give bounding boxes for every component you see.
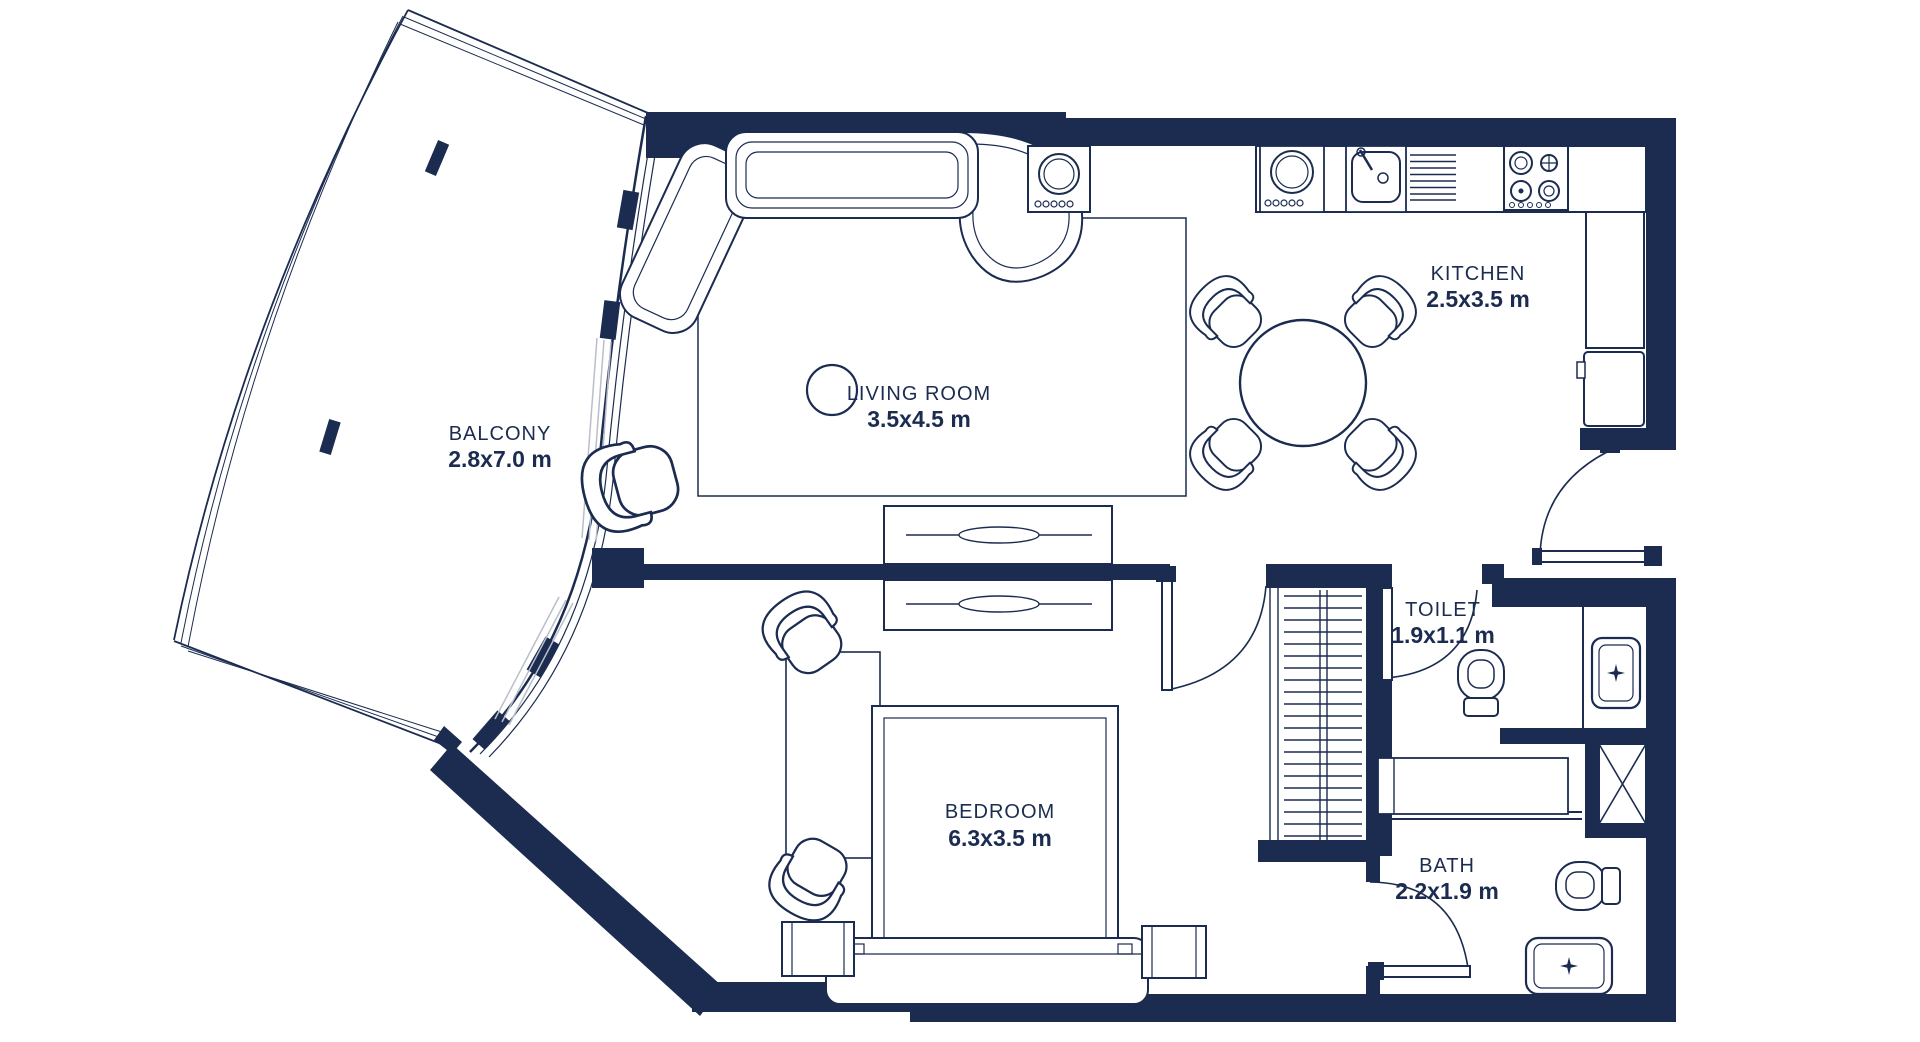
washing-machine	[1028, 146, 1090, 212]
nightstand-left	[782, 922, 854, 976]
bedroom-label-dims: 6.3x3.5 m	[948, 825, 1052, 851]
railing-mullion	[425, 140, 449, 176]
room-label-kitchen: KITCHEN 2.5x3.5 m	[1426, 263, 1530, 312]
bedroom-door-leaf	[1162, 580, 1172, 690]
bath-sink	[1526, 938, 1612, 994]
wall-niche-bottom	[1500, 728, 1676, 744]
bedroom-desk	[786, 652, 880, 858]
room-label-bedroom: BEDROOM 6.3x3.5 m	[945, 801, 1055, 851]
bedroom	[752, 506, 1206, 1004]
entry-door-leaf	[1538, 551, 1658, 562]
refrigerator	[1577, 352, 1644, 426]
floor-plan-svg: BALCONY 2.8x7.0 m LIVING ROOM 3.5x4.5 m …	[0, 0, 1920, 1042]
bath-door-leaf	[1376, 966, 1470, 977]
toilet-label-dims: 1.9x1.1 m	[1391, 622, 1495, 648]
wall-right-upper	[1646, 118, 1676, 450]
wall-shaft-bottom	[1585, 824, 1676, 838]
wall-stair-bottom	[1258, 840, 1370, 862]
floor-plan-page: BALCONY 2.8x7.0 m LIVING ROOM 3.5x4.5 m …	[0, 0, 1920, 1042]
wall-toilet-door-jamb	[1482, 564, 1504, 584]
staircase	[1270, 588, 1362, 840]
desk-chair	[752, 580, 856, 685]
balcony-railing	[174, 10, 648, 754]
bath-label-name: BATH	[1419, 855, 1475, 877]
toilet-room-counter	[1378, 758, 1568, 814]
kitchen-sink	[1346, 146, 1406, 212]
wall-bath-door-jamb-top	[1366, 856, 1380, 882]
bedroom-door	[1156, 566, 1266, 690]
room-label-bath: BATH 2.2x1.9 m	[1395, 855, 1499, 904]
wall-living-bedroom-divider	[600, 564, 1170, 580]
wall-fridge-stub	[1580, 428, 1676, 450]
living-label-name: LIVING ROOM	[847, 383, 991, 405]
cooktop	[1504, 146, 1568, 210]
wall-right-lower	[1646, 578, 1676, 1016]
wall-stair-top	[1266, 564, 1392, 588]
desk-chair	[759, 828, 860, 931]
entry-arc-jamb-cap	[1600, 438, 1620, 453]
window-mullion	[472, 710, 509, 749]
bedroom-label-name: BEDROOM	[945, 801, 1055, 823]
toilet-room-sink	[1592, 638, 1640, 708]
kitchen-label-dims: 2.5x3.5 m	[1426, 286, 1530, 312]
wall-top-right	[1060, 118, 1676, 146]
bed	[826, 706, 1148, 1004]
sofa	[611, 132, 1082, 341]
wall-shaft-left	[1585, 744, 1599, 824]
living-room-rug	[698, 218, 1186, 496]
wall-divider-junction-block	[592, 548, 644, 588]
bath-label-dims: 2.2x1.9 m	[1395, 878, 1499, 904]
bed-headboard	[826, 938, 1148, 1004]
railing-mullion	[319, 419, 340, 455]
dining-set	[1180, 266, 1426, 500]
room-label-living: LIVING ROOM 3.5x4.5 m	[847, 383, 991, 432]
nightstand-right	[1142, 926, 1206, 978]
window-mullion	[617, 190, 639, 230]
living-label-dims: 3.5x4.5 m	[867, 406, 971, 432]
toilet-label-name: TOILET	[1405, 599, 1481, 621]
wall-bottom-diagonal	[430, 744, 722, 1016]
shaft-x	[1599, 744, 1646, 824]
bath-wc	[1556, 862, 1620, 910]
entry-door	[1532, 452, 1662, 566]
room-label-balcony: BALCONY 2.8x7.0 m	[448, 423, 552, 472]
window-mullion	[600, 300, 621, 340]
dining-table	[1240, 320, 1366, 446]
bath-room	[1526, 862, 1620, 994]
kitchen-cabinet	[1586, 212, 1644, 348]
kitchen-label-name: KITCHEN	[1431, 263, 1526, 285]
balcony-label-dims: 2.8x7.0 m	[448, 446, 552, 472]
balcony-label-name: BALCONY	[449, 423, 552, 445]
toilet-room-wc	[1458, 650, 1504, 716]
oven	[1260, 146, 1324, 212]
room-label-toilet: TOILET 1.9x1.1 m	[1391, 599, 1495, 648]
